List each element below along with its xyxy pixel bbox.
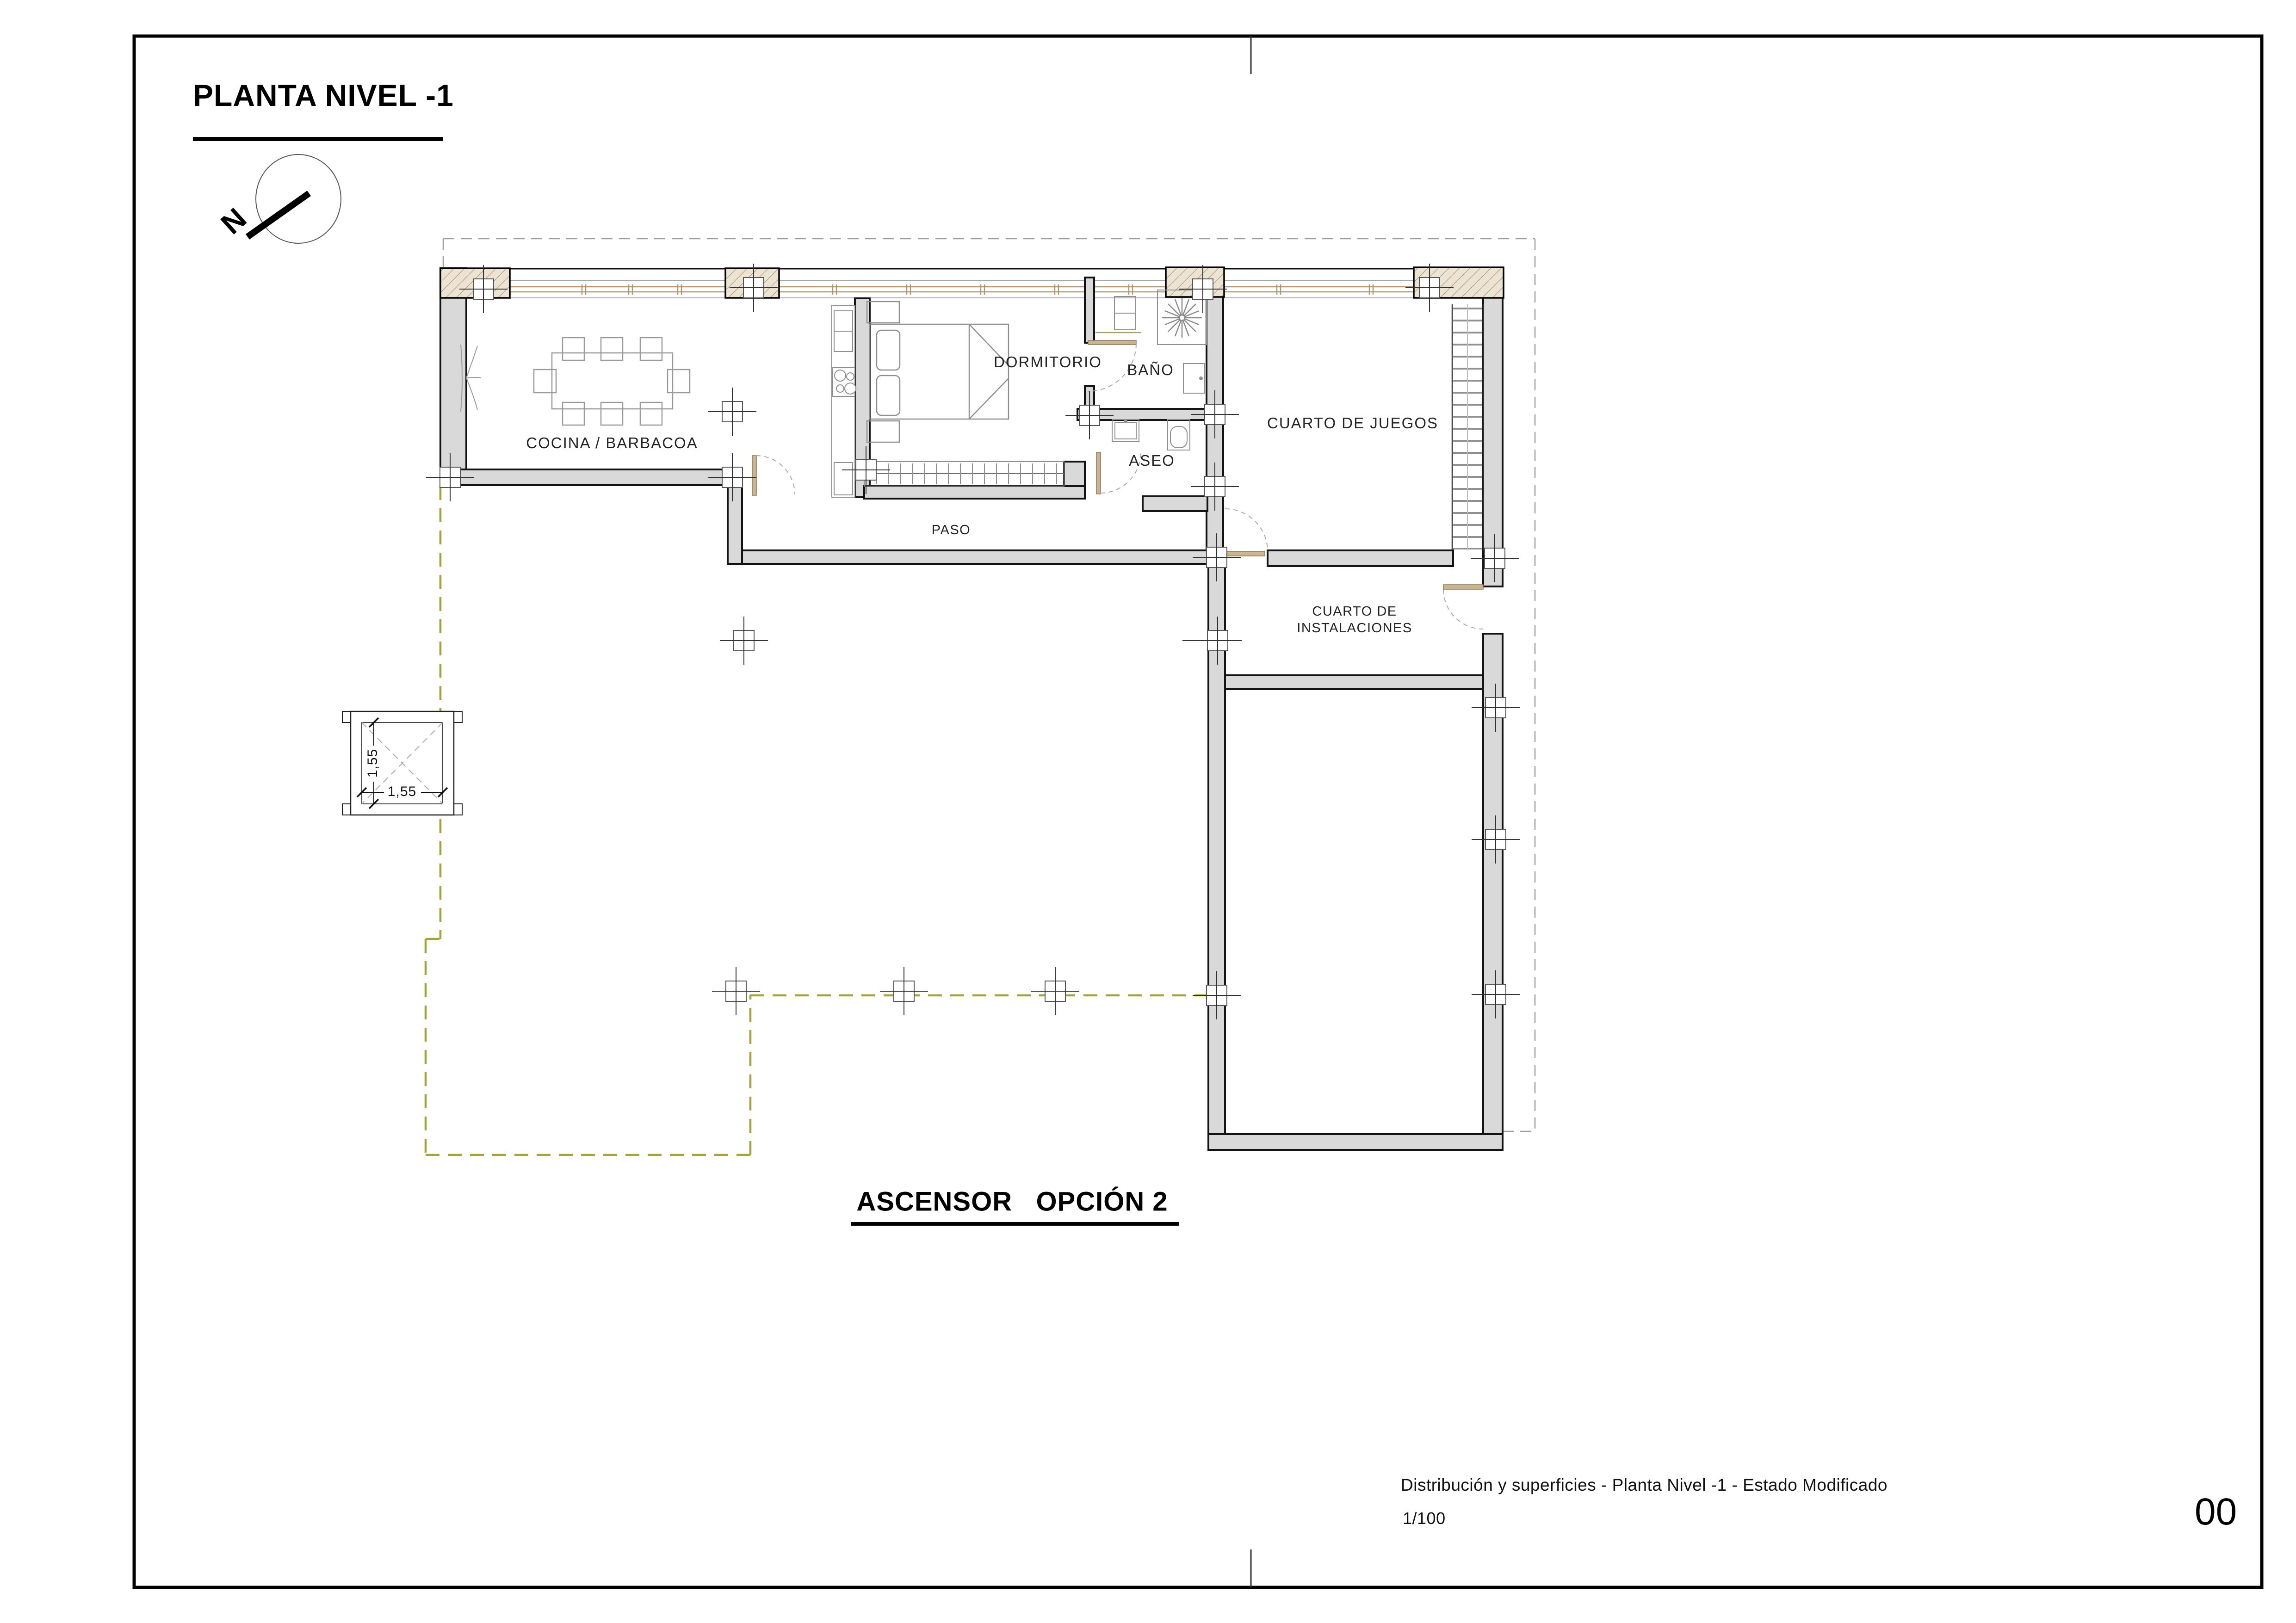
titleblock-description: Distribución y superficies - Planta Nive… <box>1401 1475 1888 1495</box>
pillow <box>877 330 900 370</box>
bed <box>867 302 1009 442</box>
terrace-boundary-dashed <box>426 486 1208 1155</box>
column-marker <box>1191 390 1239 438</box>
east-entry-door-arc <box>1443 589 1483 629</box>
nightstand <box>867 421 899 442</box>
chair <box>534 370 556 393</box>
pillow <box>877 376 900 415</box>
column-marker <box>1471 534 1519 582</box>
room-label-hallway: PASO <box>932 523 971 538</box>
room-label-kitchen: COCINA / BARBACOA <box>526 435 698 451</box>
column-marker <box>1031 967 1079 1015</box>
room-label-bedroom: DORMITORIO <box>994 354 1102 370</box>
elevator-dim-vertical: 1,55 <box>365 747 381 779</box>
chair <box>563 402 584 425</box>
page-title-underline <box>193 137 443 141</box>
floor-plan-canvas <box>0 0 2296 1623</box>
elevator-dim-horizontal: 1,55 <box>386 784 418 800</box>
burner <box>836 385 844 392</box>
chair <box>563 338 584 360</box>
column-marker <box>1472 815 1520 864</box>
bath-door-leaf <box>1088 340 1136 345</box>
wardrobe <box>864 462 1064 486</box>
wardrobe-end <box>1064 462 1085 486</box>
hallway-west-door-arc <box>756 456 795 494</box>
burner <box>847 373 854 380</box>
room-label-bathroom: BAÑO <box>1127 362 1174 378</box>
window-mullions <box>582 284 1373 295</box>
plan-caption: ASCENSOR OPCIÓN 2 <box>856 1186 1168 1217</box>
column-marker <box>1065 391 1114 439</box>
walls <box>440 268 1503 1150</box>
column-marker <box>1472 970 1520 1018</box>
east-entry-door-leaf <box>1443 585 1483 589</box>
utility-door-leaf <box>1225 551 1265 556</box>
masonry-piers <box>440 267 1504 298</box>
drawing-sheet: PLANTA NIVEL -1 N COCINA / BARBACOA DORM… <box>0 0 2296 1623</box>
dining-table <box>534 338 690 425</box>
page-title: PLANTA NIVEL -1 <box>193 78 454 113</box>
room-label-utility-2: INSTALACIONES <box>1297 621 1412 636</box>
wall-bedroom-bath-upper <box>1085 278 1094 343</box>
burner <box>845 383 856 394</box>
column-marker <box>708 453 756 501</box>
wall-jog <box>728 485 742 564</box>
stairs <box>1452 304 1483 550</box>
column-marker <box>708 388 756 436</box>
column-marker <box>712 967 760 1015</box>
window-bands <box>441 269 1504 298</box>
column-marker <box>1193 533 1241 581</box>
column-marker <box>1193 971 1241 1019</box>
chair <box>601 338 623 360</box>
toilet-wc <box>1168 420 1190 450</box>
blanket-fold <box>969 324 1009 419</box>
column-marker <box>1472 684 1520 732</box>
wall-bottom-room-south <box>1208 1134 1503 1150</box>
column-markers <box>426 264 1520 1019</box>
wall-paso-south <box>742 550 1209 564</box>
wall-bedroom-south <box>864 486 1085 499</box>
toilet-door-leaf <box>1096 452 1101 494</box>
chair <box>640 402 662 425</box>
plan-caption-underline <box>851 1222 1179 1226</box>
wall-east-upper-stub <box>1483 566 1503 586</box>
kitchen-cabinet <box>834 463 853 495</box>
room-label-toilet: ASEO <box>1129 452 1175 469</box>
chair <box>640 338 662 360</box>
nightstand <box>867 302 899 323</box>
utility-door-arc <box>1225 509 1268 551</box>
wall-toilet-south <box>1143 496 1207 511</box>
column-marker <box>880 967 928 1015</box>
titleblock-sheet-number: 00 <box>2195 1490 2237 1534</box>
shower-drain-icon <box>1162 298 1202 338</box>
room-label-utility-1: CUARTO DE <box>1312 605 1397 619</box>
wall-utility-south <box>1225 675 1483 689</box>
column-marker <box>720 617 768 665</box>
wall-playroom-south <box>1268 550 1453 566</box>
room-label-playroom: CUARTO DE JUEGOS <box>1267 415 1438 432</box>
north-arrow-icon <box>248 154 341 243</box>
titleblock-scale: 1/100 <box>1403 1509 1446 1528</box>
hallway-west-door-leaf <box>752 456 756 495</box>
kitchen-counter <box>832 305 856 497</box>
burner <box>835 370 846 381</box>
wall-kitchen-south <box>441 469 740 485</box>
chair <box>668 370 690 393</box>
wall-playroom-east <box>1483 280 1503 550</box>
chair <box>601 402 623 425</box>
